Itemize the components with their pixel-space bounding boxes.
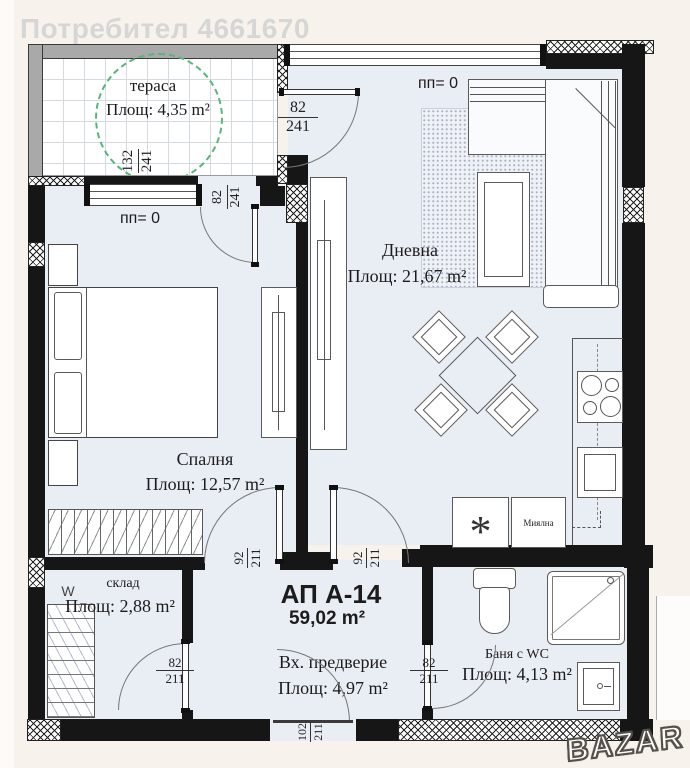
wall-hatch bbox=[27, 719, 61, 741]
pillow bbox=[54, 292, 82, 360]
burner bbox=[600, 396, 621, 417]
wall-hatch bbox=[623, 187, 644, 223]
nightstand bbox=[48, 244, 78, 286]
door-leaf bbox=[252, 206, 258, 264]
door-cap bbox=[355, 88, 360, 96]
terrace-name: тераса bbox=[103, 77, 203, 96]
living-window bbox=[284, 44, 546, 66]
shower-drain bbox=[607, 577, 614, 584]
door-cap bbox=[181, 639, 190, 644]
wall-segment bbox=[256, 176, 278, 186]
door-cap bbox=[329, 559, 338, 564]
window-jamb bbox=[84, 184, 90, 206]
kitchen-sink-inner bbox=[584, 454, 616, 491]
partition-wall bbox=[296, 222, 308, 562]
counter-dash-corner bbox=[572, 511, 601, 528]
dim-door-storage: 82211 bbox=[158, 656, 192, 686]
door-cap bbox=[423, 706, 432, 711]
sink-handle-line bbox=[604, 686, 611, 687]
wall-segment bbox=[622, 223, 645, 547]
bedroom-window-label: пп= 0 bbox=[108, 210, 172, 228]
dim-terrace-door-bedroom: 82241 bbox=[204, 174, 250, 220]
toilet-bowl bbox=[479, 587, 510, 634]
wardrobe-rail bbox=[48, 509, 203, 555]
wall-segment bbox=[627, 568, 649, 721]
terrace-parapet-left bbox=[28, 44, 43, 179]
door-leaf bbox=[330, 487, 337, 563]
page-edge bbox=[0, 0, 14, 768]
dim-door-living: 92211 bbox=[344, 536, 388, 580]
living-name: Дневна bbox=[360, 241, 460, 261]
wall-segment bbox=[45, 557, 205, 570]
dim-door-entrance: 102211 bbox=[292, 712, 328, 752]
window-mullion bbox=[86, 198, 200, 199]
sink-handle-icon bbox=[597, 683, 603, 689]
door-cap bbox=[423, 640, 432, 645]
washing-machine: * bbox=[452, 497, 509, 548]
wall-segment bbox=[61, 719, 270, 741]
window-mullion bbox=[86, 191, 200, 192]
door-cap bbox=[329, 485, 338, 490]
dim-door-bathroom: 82211 bbox=[412, 656, 446, 686]
wall-hatch bbox=[286, 184, 308, 223]
wall-hatch bbox=[28, 557, 45, 588]
kitchen-bath-wall bbox=[420, 545, 653, 567]
dishwasher-label: Миялна bbox=[523, 518, 553, 528]
window-mullion bbox=[286, 51, 544, 52]
wall-segment bbox=[356, 719, 398, 741]
window-jamb bbox=[284, 44, 290, 66]
sofa-back-lines bbox=[595, 81, 616, 305]
wall-corner bbox=[260, 186, 285, 206]
pillow bbox=[54, 372, 82, 434]
dim-terrace-door-living: 82241 bbox=[280, 100, 316, 136]
bedroom-name: Спалня bbox=[155, 450, 255, 470]
floor-plan: Потребител 4661670 тераса Площ: 4,35 m² … bbox=[0, 0, 690, 768]
living-window-label: пп= 0 bbox=[406, 75, 470, 93]
living-area: Площ: 21,67 m² bbox=[337, 267, 477, 287]
apartment-code: АП А-14 bbox=[261, 580, 401, 609]
coffee-table-inner bbox=[484, 182, 523, 277]
wall-hatch bbox=[28, 176, 86, 186]
door-cap bbox=[181, 708, 190, 713]
cabinet-handle-line bbox=[324, 200, 325, 430]
door-cap bbox=[251, 262, 259, 267]
door-cap bbox=[275, 485, 284, 490]
window-mullion bbox=[286, 58, 544, 59]
bed-headboard-line bbox=[86, 288, 87, 437]
dishwasher: Миялна bbox=[511, 497, 566, 548]
sofa-armrest bbox=[543, 285, 619, 308]
wall-segment bbox=[28, 186, 45, 242]
wall-hatch bbox=[28, 242, 45, 267]
burner bbox=[581, 375, 602, 396]
door-leaf bbox=[276, 487, 283, 563]
bath-wall bbox=[422, 567, 433, 645]
storage-area: Площ: 2,88 m² bbox=[50, 597, 190, 617]
wall-segment bbox=[622, 44, 645, 187]
burner bbox=[605, 378, 619, 392]
counter-edge bbox=[572, 338, 623, 339]
toilet-tank bbox=[473, 568, 516, 589]
door-cap bbox=[279, 88, 284, 96]
nightstand bbox=[48, 440, 78, 486]
window-jamb bbox=[196, 184, 202, 206]
bedroom-window bbox=[84, 184, 202, 206]
apartment-total-area: 59,02 m² bbox=[261, 609, 393, 630]
door-cap bbox=[251, 204, 259, 209]
storage-name: склад bbox=[92, 576, 154, 591]
wall-segment bbox=[280, 552, 333, 570]
door-cap bbox=[275, 559, 284, 564]
cabinet-handle-line bbox=[278, 295, 279, 430]
storage-shelves bbox=[47, 604, 95, 718]
dim-door-bedroom: 92211 bbox=[225, 536, 269, 580]
user-watermark: Потребител 4661670 bbox=[20, 13, 310, 45]
adjacent-unit-strip bbox=[656, 596, 690, 720]
terrace-area: Площ: 4,35 m² bbox=[83, 101, 233, 120]
burner bbox=[583, 401, 597, 415]
door-leaf bbox=[281, 89, 359, 95]
wall-segment bbox=[28, 588, 45, 719]
wall-segment bbox=[28, 267, 45, 557]
